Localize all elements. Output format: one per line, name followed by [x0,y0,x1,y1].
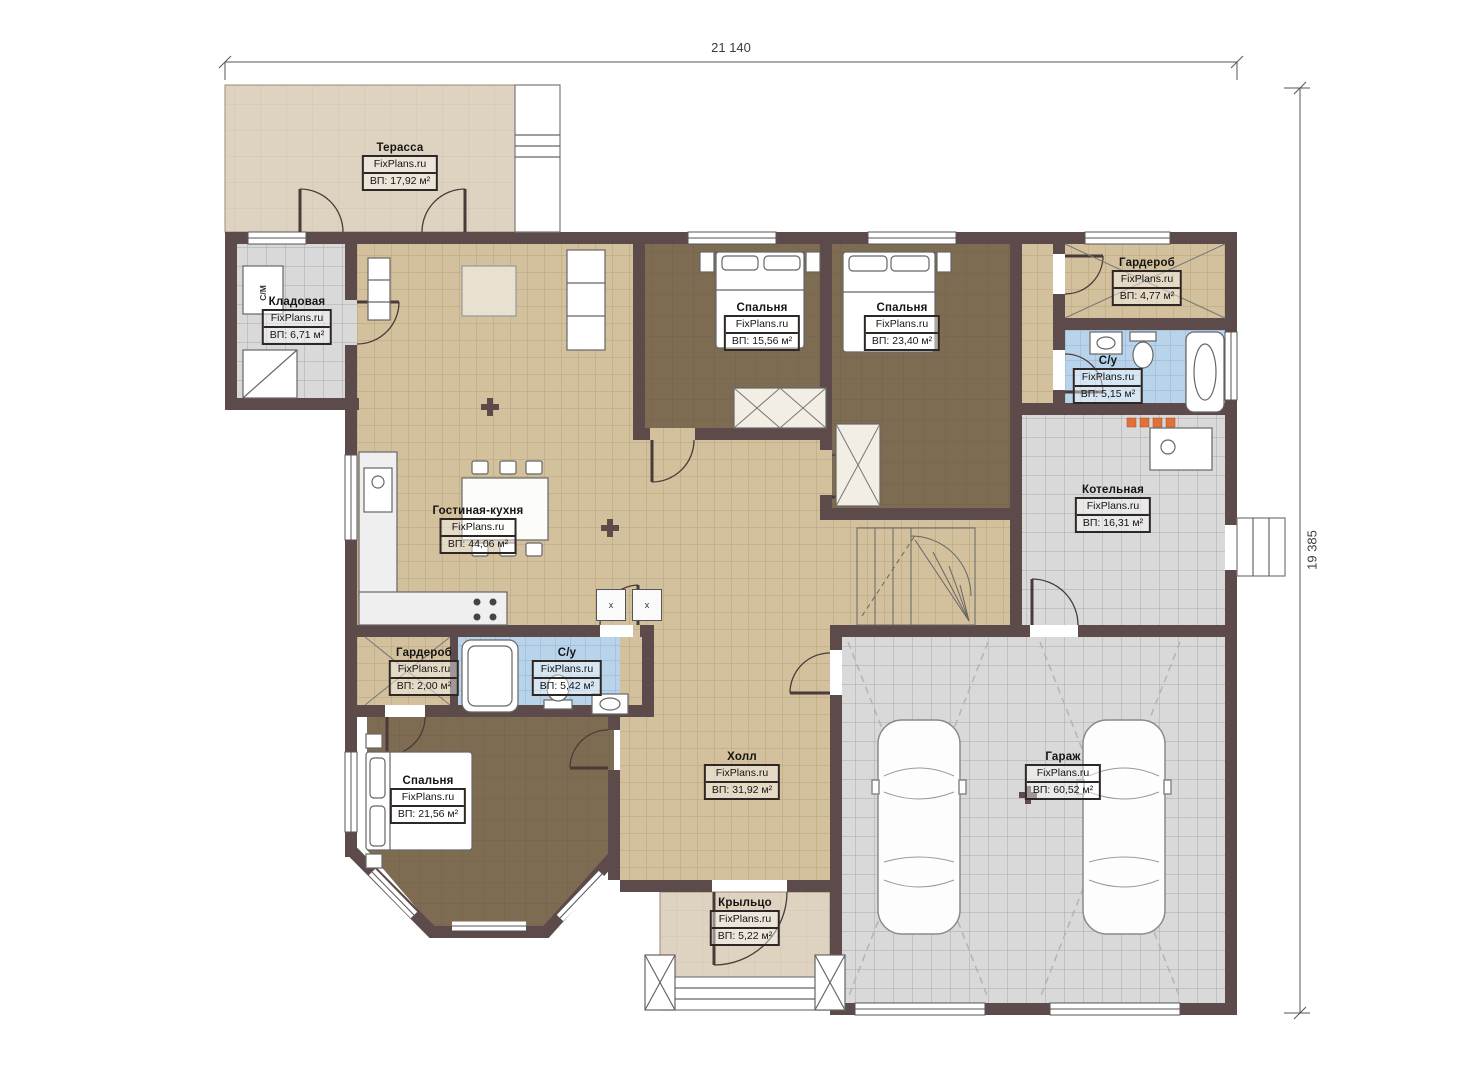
room-label-porch: Крыльцо FixPlans.ru ВП: 5,22 м² [710,897,780,946]
room-label-wardrobe-2: Гардероб FixPlans.ru ВП: 2,00 м² [389,647,459,696]
room-name: С/у [532,647,602,659]
room-info-box: FixPlans.ru ВП: 16,31 м² [1075,497,1151,533]
room-name: С/у [1073,355,1143,367]
kitchen-stool-2: x [632,589,662,621]
room-name: Гараж [1025,751,1101,763]
kitchen-stool-1: x [596,589,626,621]
room-area: ВП: 60,52 м² [1027,783,1099,798]
room-area: ВП: 4,77 м² [1114,289,1180,304]
car-left [872,720,966,934]
room-name: Гардероб [389,647,459,659]
brand-watermark: FixPlans.ru [364,157,436,174]
room-name: Холл [704,751,780,763]
room-name: Кладовая [262,296,332,308]
room-info-box: FixPlans.ru ВП: 5,15 м² [1073,368,1143,404]
room-name: Спальня [724,302,800,314]
room-info-box: FixPlans.ru ВП: 4,77 м² [1112,270,1182,306]
room-area: ВП: 31,92 м² [706,783,778,798]
room-label-bathroom-2: С/у FixPlans.ru ВП: 5,42 м² [532,647,602,696]
brand-watermark: FixPlans.ru [1027,766,1099,783]
rug [462,266,516,316]
room-name: Спальня [390,775,466,787]
room-name: Терасса [362,142,438,154]
room-label-boiler-room: Котельная FixPlans.ru ВП: 16,31 м² [1075,484,1151,533]
room-label-storage: Кладовая FixPlans.ru ВП: 6,71 м² [262,296,332,345]
room-info-box: FixPlans.ru ВП: 60,52 м² [1025,764,1101,800]
room-area: ВП: 17,92 м² [364,174,436,189]
brand-watermark: FixPlans.ru [264,311,330,328]
kitchen-counter-bottom [359,592,507,625]
room-info-box: FixPlans.ru ВП: 31,92 м² [704,764,780,800]
shelf [368,258,390,320]
room-area: ВП: 6,71 м² [264,328,330,343]
room-label-wardrobe-1: Гардероб FixPlans.ru ВП: 4,77 м² [1112,257,1182,306]
room-area: ВП: 16,31 м² [1077,516,1149,531]
room-area: ВП: 23,40 м² [866,334,938,349]
room-label-bedroom-2: Спальня FixPlans.ru ВП: 23,40 м² [864,302,940,351]
brand-watermark: FixPlans.ru [1114,272,1180,289]
dimension-height-label: 19 385 [1305,530,1320,570]
room-area: ВП: 5,22 м² [712,929,778,944]
boiler-unit [1150,428,1212,470]
room-area: ВП: 15,56 м² [726,334,798,349]
terrace-strip [515,85,560,232]
room-info-box: FixPlans.ru ВП: 5,22 м² [710,910,780,946]
room-area: ВП: 5,42 м² [534,679,600,694]
room-info-box: FixPlans.ru ВП: 23,40 м² [864,315,940,351]
room-label-living-kitchen: Гостиная-кухня FixPlans.ru ВП: 44,06 м² [433,505,524,554]
brand-watermark: FixPlans.ru [392,790,464,807]
room-info-box: FixPlans.ru ВП: 21,56 м² [390,788,466,824]
closet-1 [734,388,826,428]
cabinet [567,250,605,350]
brand-watermark: FixPlans.ru [712,912,778,929]
kitchen-sink [364,468,392,512]
dimension-width-label: 21 140 [711,40,751,55]
room-info-box: FixPlans.ru ВП: 44,06 м² [440,518,516,554]
room-info-box: FixPlans.ru ВП: 2,00 м² [389,660,459,696]
room-name: Гардероб [1112,257,1182,269]
room-label-hall: Холл FixPlans.ru ВП: 31,92 м² [704,751,780,800]
brand-watermark: FixPlans.ru [442,520,514,537]
brand-watermark: FixPlans.ru [1077,499,1149,516]
room-area: ВП: 2,00 м² [391,679,457,694]
room-info-box: FixPlans.ru ВП: 6,71 м² [262,309,332,345]
room-name: Котельная [1075,484,1151,496]
room-name: Крыльцо [710,897,780,909]
brand-watermark: FixPlans.ru [391,662,457,679]
room-label-garage: Гараж FixPlans.ru ВП: 60,52 м² [1025,751,1101,800]
room-label-bathroom-1: С/у FixPlans.ru ВП: 5,15 м² [1073,355,1143,404]
bathtub-2 [462,640,518,712]
floor-plan: 21 140 19 385 С/М x x Терасса FixPlans.r… [0,0,1473,1080]
room-label-bedroom-1: Спальня FixPlans.ru ВП: 15,56 м² [724,302,800,351]
brand-watermark: FixPlans.ru [706,766,778,783]
room-name: Гостиная-кухня [433,505,524,517]
room-name: Спальня [864,302,940,314]
room-label-bedroom-3: Спальня FixPlans.ru ВП: 21,56 м² [390,775,466,824]
brand-watermark: FixPlans.ru [1075,370,1141,387]
side-stoop [1237,518,1285,576]
room-info-box: FixPlans.ru ВП: 15,56 м² [724,315,800,351]
room-area: ВП: 21,56 м² [392,807,464,822]
porch-steps [660,977,830,1010]
brand-watermark: FixPlans.ru [534,662,600,679]
brand-watermark: FixPlans.ru [726,317,798,334]
brand-watermark: FixPlans.ru [866,317,938,334]
room-area: ВП: 5,15 м² [1075,387,1141,402]
room-info-box: FixPlans.ru ВП: 17,92 м² [362,155,438,191]
room-area: ВП: 44,06 м² [442,537,514,552]
room-label-terrace: Терасса FixPlans.ru ВП: 17,92 м² [362,142,438,191]
room-info-box: FixPlans.ru ВП: 5,42 м² [532,660,602,696]
